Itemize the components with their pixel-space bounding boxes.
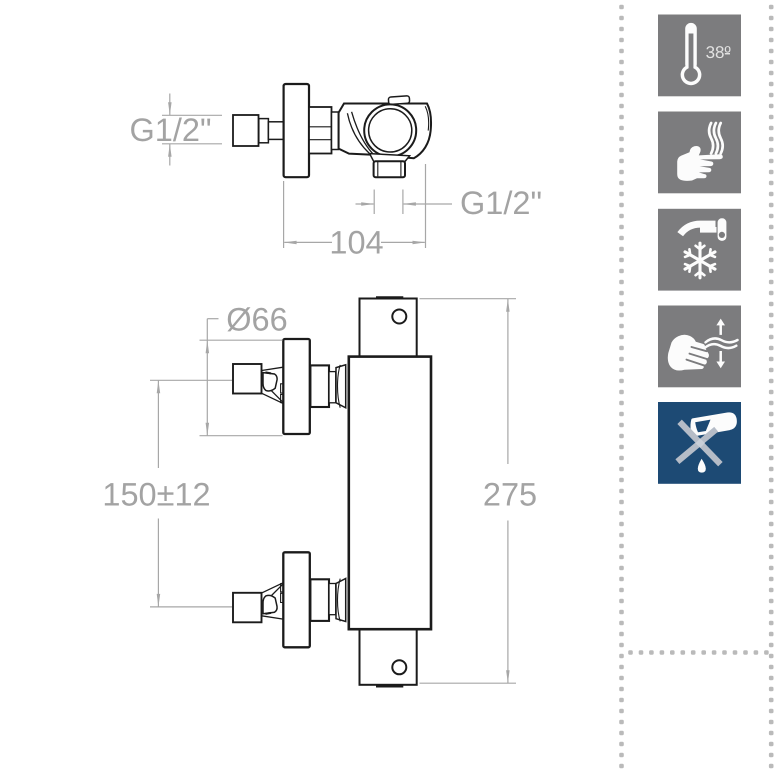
svg-text:150±12: 150±12 bbox=[102, 477, 210, 513]
svg-text:104: 104 bbox=[329, 225, 383, 261]
svg-text:38º: 38º bbox=[706, 43, 731, 62]
svg-text:G1/2": G1/2" bbox=[460, 185, 542, 221]
svg-text:Ø66: Ø66 bbox=[226, 302, 287, 338]
svg-text:G1/2": G1/2" bbox=[130, 112, 212, 148]
svg-text:275: 275 bbox=[483, 477, 537, 513]
